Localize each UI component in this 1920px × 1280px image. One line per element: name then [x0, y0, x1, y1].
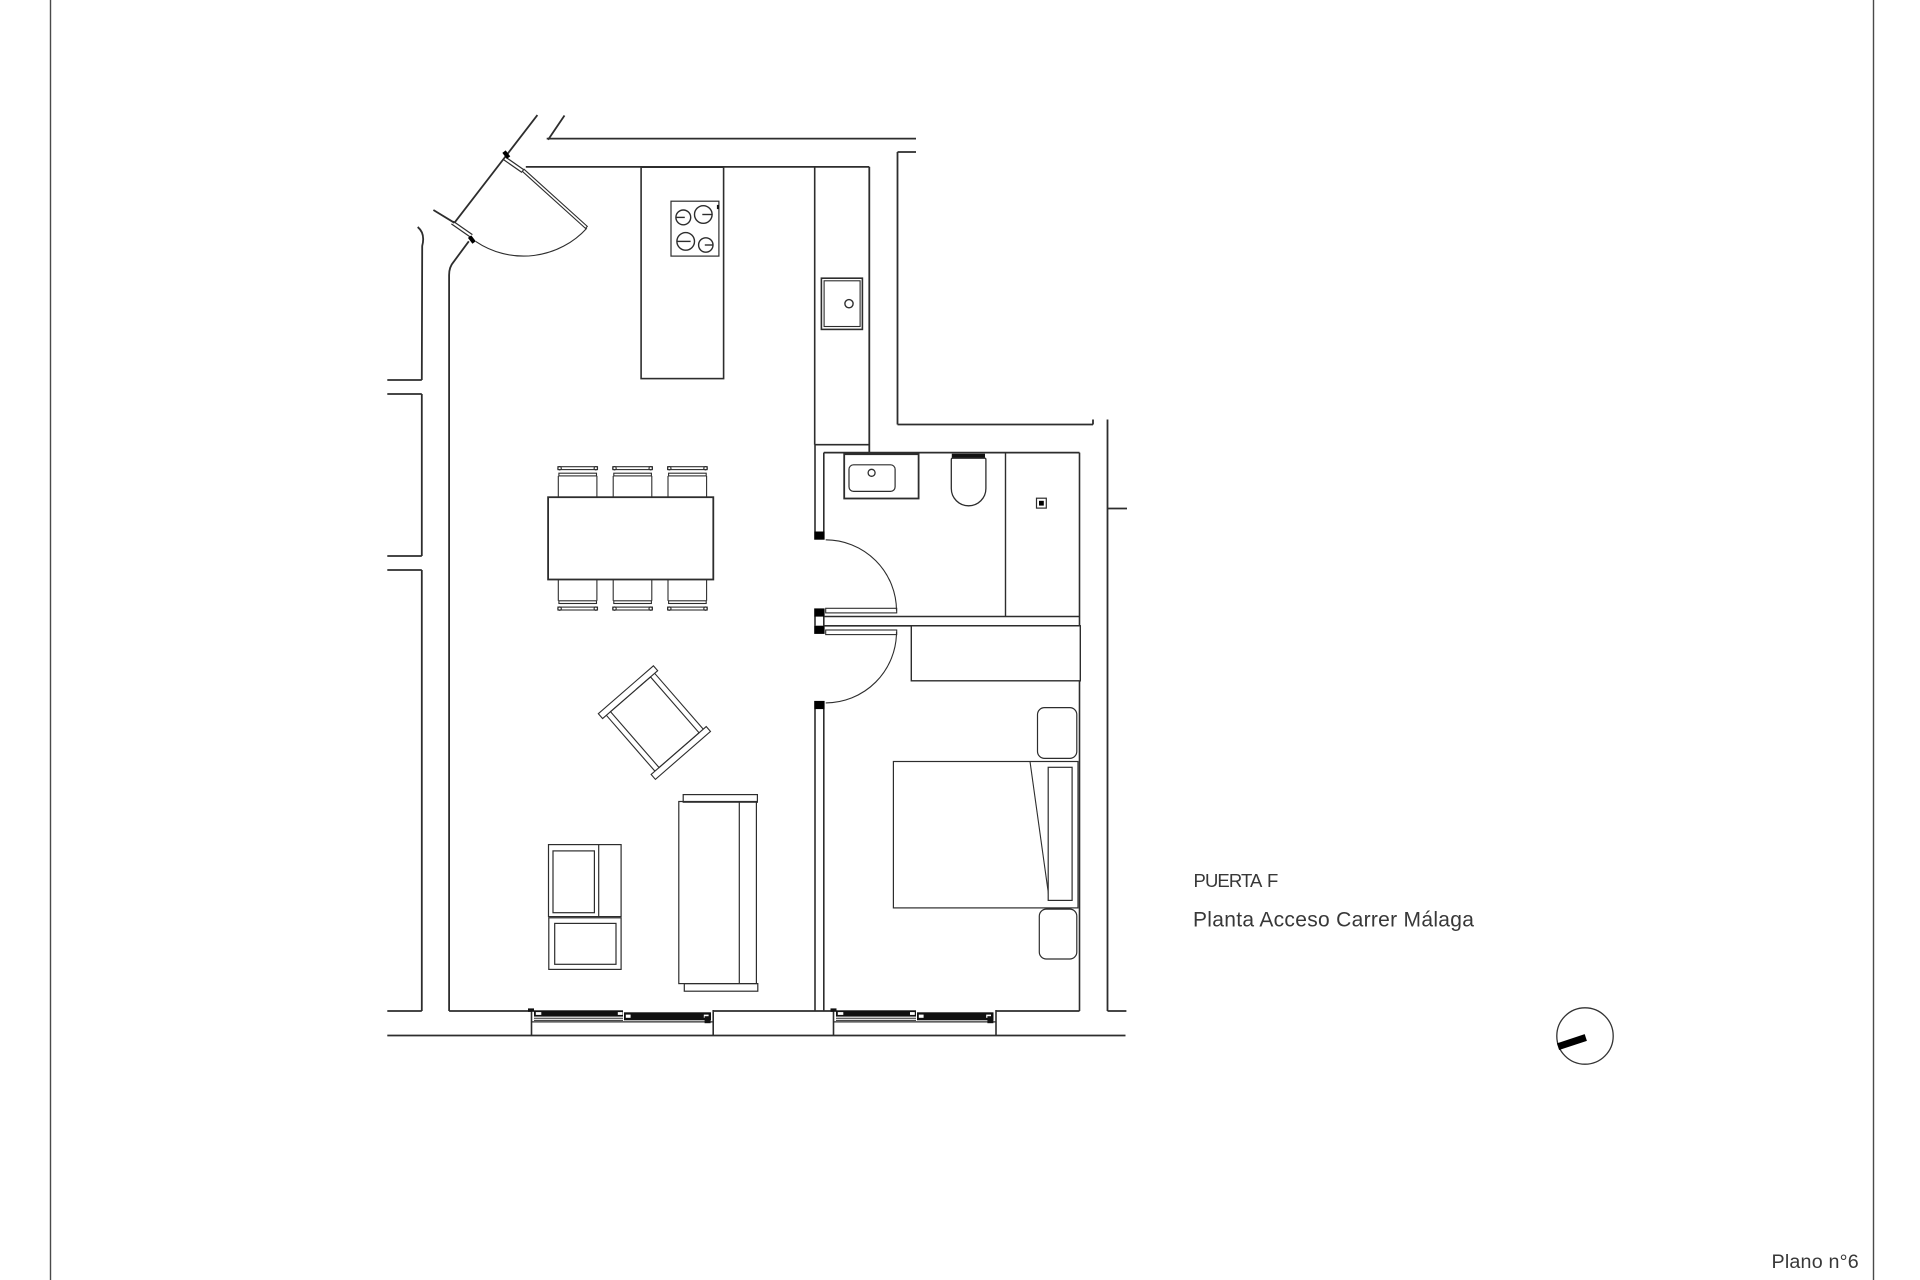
svg-text:PUERTA F: PUERTA F: [1194, 870, 1279, 891]
svg-text:Planta Acceso Carrer Málaga: Planta Acceso Carrer Málaga: [1193, 909, 1474, 932]
svg-text:Plano n°6: Plano n°6: [1772, 1251, 1859, 1273]
